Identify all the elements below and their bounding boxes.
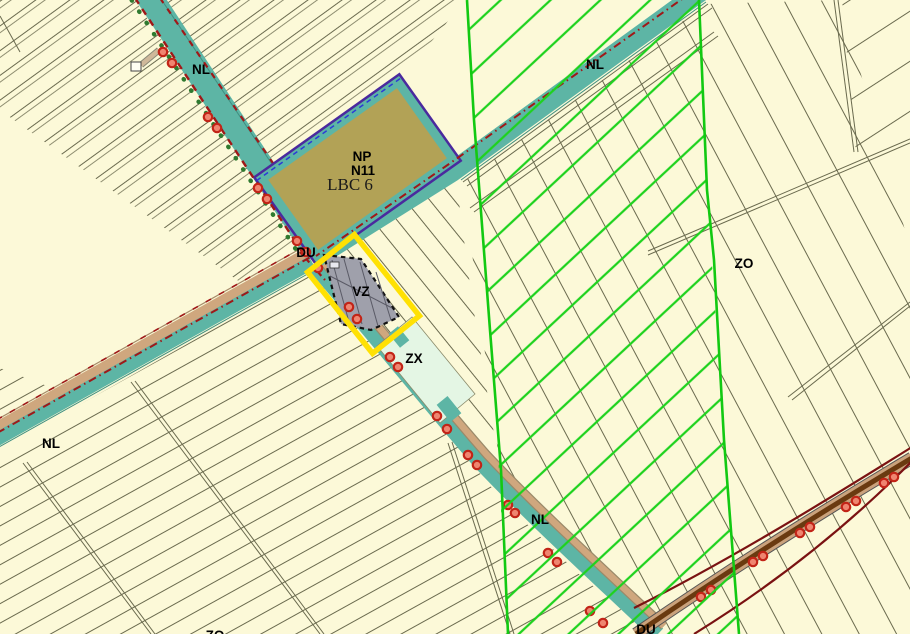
zone-label-nl-west: NL <box>42 436 60 451</box>
zoning-map-canvas: NL NL NP N11 LBC 6 DU VZ ZX ZO NL NL ZO … <box>0 0 910 634</box>
zone-label-zo-south: ZO <box>206 628 225 634</box>
green-hatch-area <box>467 0 739 634</box>
zone-label-zx: ZX <box>405 351 422 366</box>
zone-label-nl-top-left: NL <box>192 62 210 77</box>
zone-label-lbc-6: LBC 6 <box>327 175 373 194</box>
zone-label-du-central: DU <box>296 245 316 260</box>
zone-label-zo-east: ZO <box>735 256 754 271</box>
zone-label-nl-south: NL <box>531 512 549 527</box>
zone-label-np: NP <box>353 149 372 164</box>
zone-label-vz: VZ <box>352 284 369 299</box>
zone-label-du-south: DU <box>636 622 656 634</box>
zoning-map-viewport[interactable]: NL NL NP N11 LBC 6 DU VZ ZX ZO NL NL ZO … <box>0 0 910 634</box>
zone-label-nl-top-right: NL <box>586 57 604 72</box>
